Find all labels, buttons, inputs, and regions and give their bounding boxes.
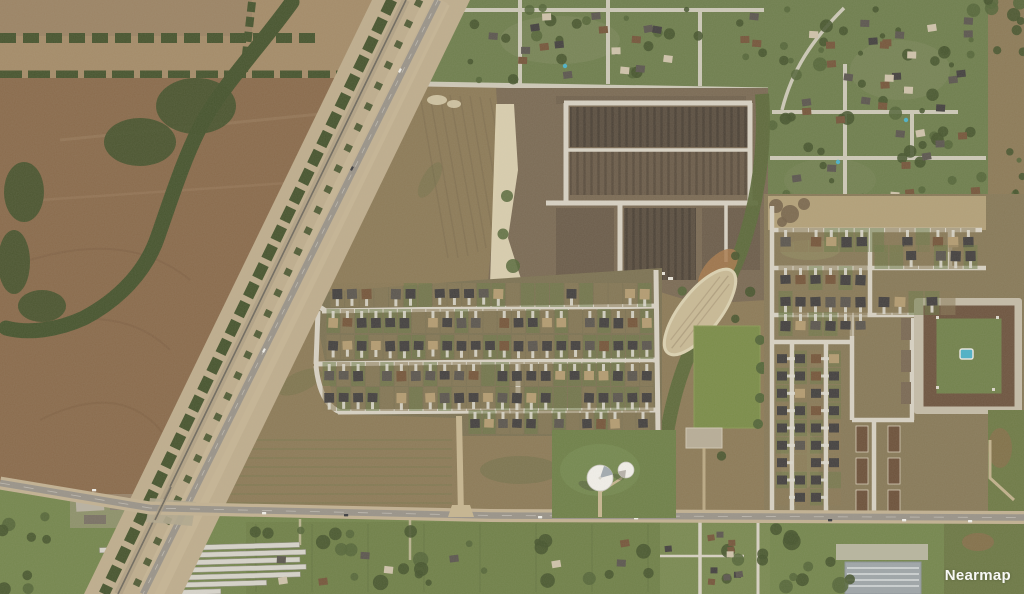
aerial-map-canvas[interactable]: Nearmap [0,0,1024,594]
photo-grain-overlay [0,0,1024,594]
aerial-imagery [0,0,1024,594]
nearmap-watermark: Nearmap [945,567,1011,584]
